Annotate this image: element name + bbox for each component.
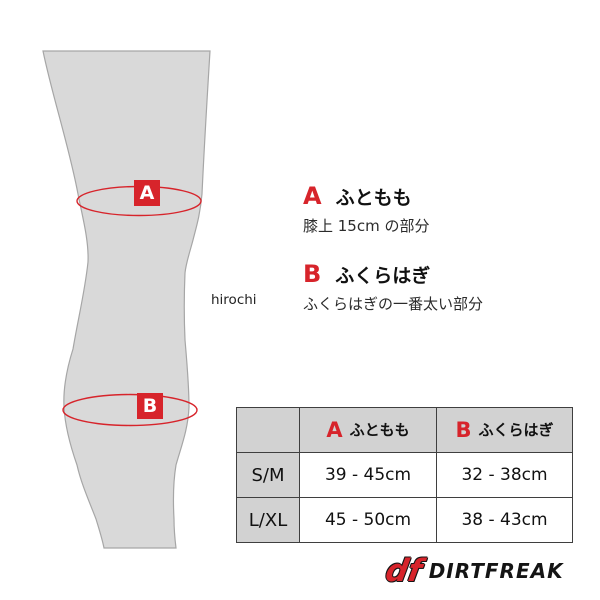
legend-title-calf: ふくらはぎ bbox=[335, 261, 430, 288]
size-label-lxl: L/XL bbox=[237, 498, 300, 543]
calf-value-lxl: 38 - 43cm bbox=[437, 498, 573, 543]
legend-desc-calf: ふくらはぎの一番太い部分 bbox=[303, 293, 563, 314]
measure-marker-b: B bbox=[137, 393, 163, 419]
size-chart-table: Aふともも Bふくらはぎ S/M 39 - 45cm 32 - 38cm L/X… bbox=[236, 407, 573, 543]
header-letter-a: A bbox=[326, 418, 342, 442]
legend-heading-calf: B ふくらはぎ bbox=[303, 261, 563, 288]
measurement-legend: A ふともも 膝上 15cm の部分 B ふくらはぎ ふくらはぎの一番太い部分 bbox=[303, 183, 563, 314]
size-guide-page: A B hirochi A ふともも 膝上 15cm の部分 B ふくらはぎ ふ… bbox=[0, 0, 600, 600]
header-empty-cell bbox=[237, 408, 300, 453]
legend-item-thigh: A ふともも 膝上 15cm の部分 bbox=[303, 183, 563, 236]
size-label-sm: S/M bbox=[237, 453, 300, 498]
header-label-calf: ふくらはぎ bbox=[479, 421, 554, 439]
thigh-value-sm: 39 - 45cm bbox=[300, 453, 437, 498]
calf-value-sm: 32 - 38cm bbox=[437, 453, 573, 498]
watermark-text: hirochi bbox=[211, 292, 257, 308]
leg-silhouette bbox=[43, 51, 210, 548]
legend-item-calf: B ふくらはぎ ふくらはぎの一番太い部分 bbox=[303, 261, 563, 314]
brand-logo: df DIRTFREAK bbox=[386, 554, 564, 588]
measure-marker-a: A bbox=[134, 180, 160, 206]
header-letter-b: B bbox=[455, 418, 471, 442]
brand-name-text: DIRTFREAK bbox=[429, 559, 564, 583]
dirtfreak-df-emblem-icon: df bbox=[383, 554, 425, 588]
thigh-value-lxl: 45 - 50cm bbox=[300, 498, 437, 543]
legend-heading-thigh: A ふともも bbox=[303, 183, 563, 210]
legend-letter-b: B bbox=[303, 261, 321, 287]
legend-letter-a: A bbox=[303, 183, 322, 209]
header-calf-cell: Bふくらはぎ bbox=[437, 408, 573, 453]
header-label-thigh: ふともも bbox=[350, 421, 410, 439]
size-chart-header-row: Aふともも Bふくらはぎ bbox=[237, 408, 573, 453]
table-row-sm: S/M 39 - 45cm 32 - 38cm bbox=[237, 453, 573, 498]
table-row-lxl: L/XL 45 - 50cm 38 - 43cm bbox=[237, 498, 573, 543]
legend-desc-thigh: 膝上 15cm の部分 bbox=[303, 215, 563, 236]
header-thigh-cell: Aふともも bbox=[300, 408, 437, 453]
legend-title-thigh: ふともも bbox=[336, 183, 412, 210]
